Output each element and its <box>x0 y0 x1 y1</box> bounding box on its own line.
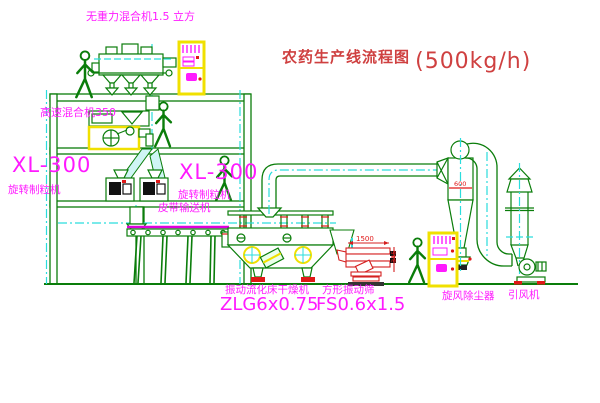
fan-drawing <box>514 259 546 285</box>
drawing-canvas: 1500 345 600 农药生产线流程图 (500kg/h) 无重力混合机1.… <box>0 0 600 403</box>
duct-elbow-drawing <box>258 164 444 217</box>
title-text: 农药生产线流程图 <box>282 48 410 66</box>
person-figure <box>409 238 425 282</box>
control-cabinet-bottom <box>429 233 457 286</box>
drawing-title: 农药生产线流程图 (500kg/h) <box>282 46 531 74</box>
granulators-drawing <box>106 170 168 230</box>
dim-sieve-length: 1500 <box>356 235 374 243</box>
label-granulator-mid: 旋转制粒机 <box>178 190 231 201</box>
label-fan: 引风机 <box>508 290 540 301</box>
dim-sieve-height: 345 <box>390 251 398 263</box>
label-dryer-model: ZLG6x0.75 <box>220 296 319 314</box>
label-belt-conveyor: 皮带输送机 <box>158 203 211 214</box>
label-xl300-mid: XL-300 <box>179 162 258 183</box>
label-high-speed-mixer: 高速混合机350 <box>40 107 116 118</box>
label-xl300-left: XL-300 <box>12 155 91 176</box>
label-sieve-model: FS0.6x1.5 <box>316 296 405 314</box>
label-gravity-free-mixer: 无重力混合机1.5 立方 <box>86 11 195 22</box>
label-granulator-left: 旋转制粒机 <box>8 185 61 196</box>
dim-cyclone: 600 <box>454 180 466 188</box>
label-cyclone: 旋风除尘器 <box>442 291 495 302</box>
title-capacity: (500kg/h) <box>415 49 531 74</box>
control-cabinet-top <box>179 42 204 94</box>
